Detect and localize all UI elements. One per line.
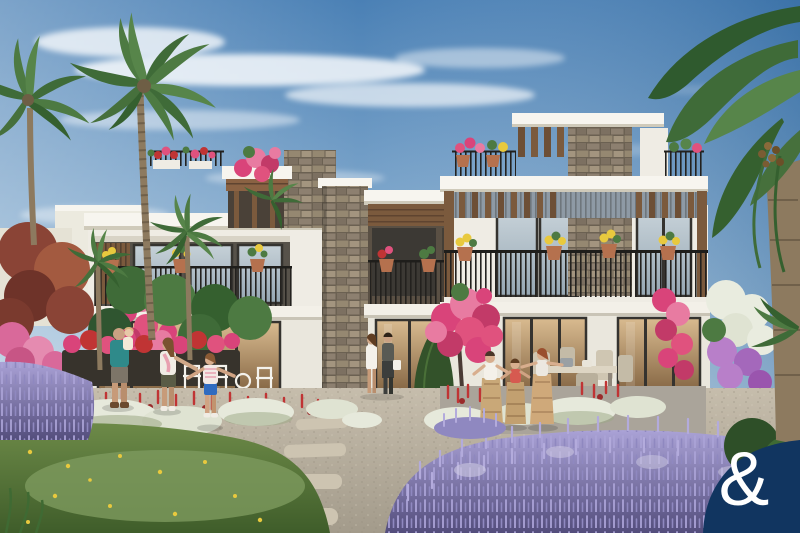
property-photo: & <box>0 0 800 533</box>
logo-ampersand: & <box>719 437 770 522</box>
pergola-slats-right <box>446 192 700 218</box>
scene-render: & <box>0 0 800 533</box>
stone-pillar-center <box>318 178 372 398</box>
clover-patch <box>25 450 305 522</box>
